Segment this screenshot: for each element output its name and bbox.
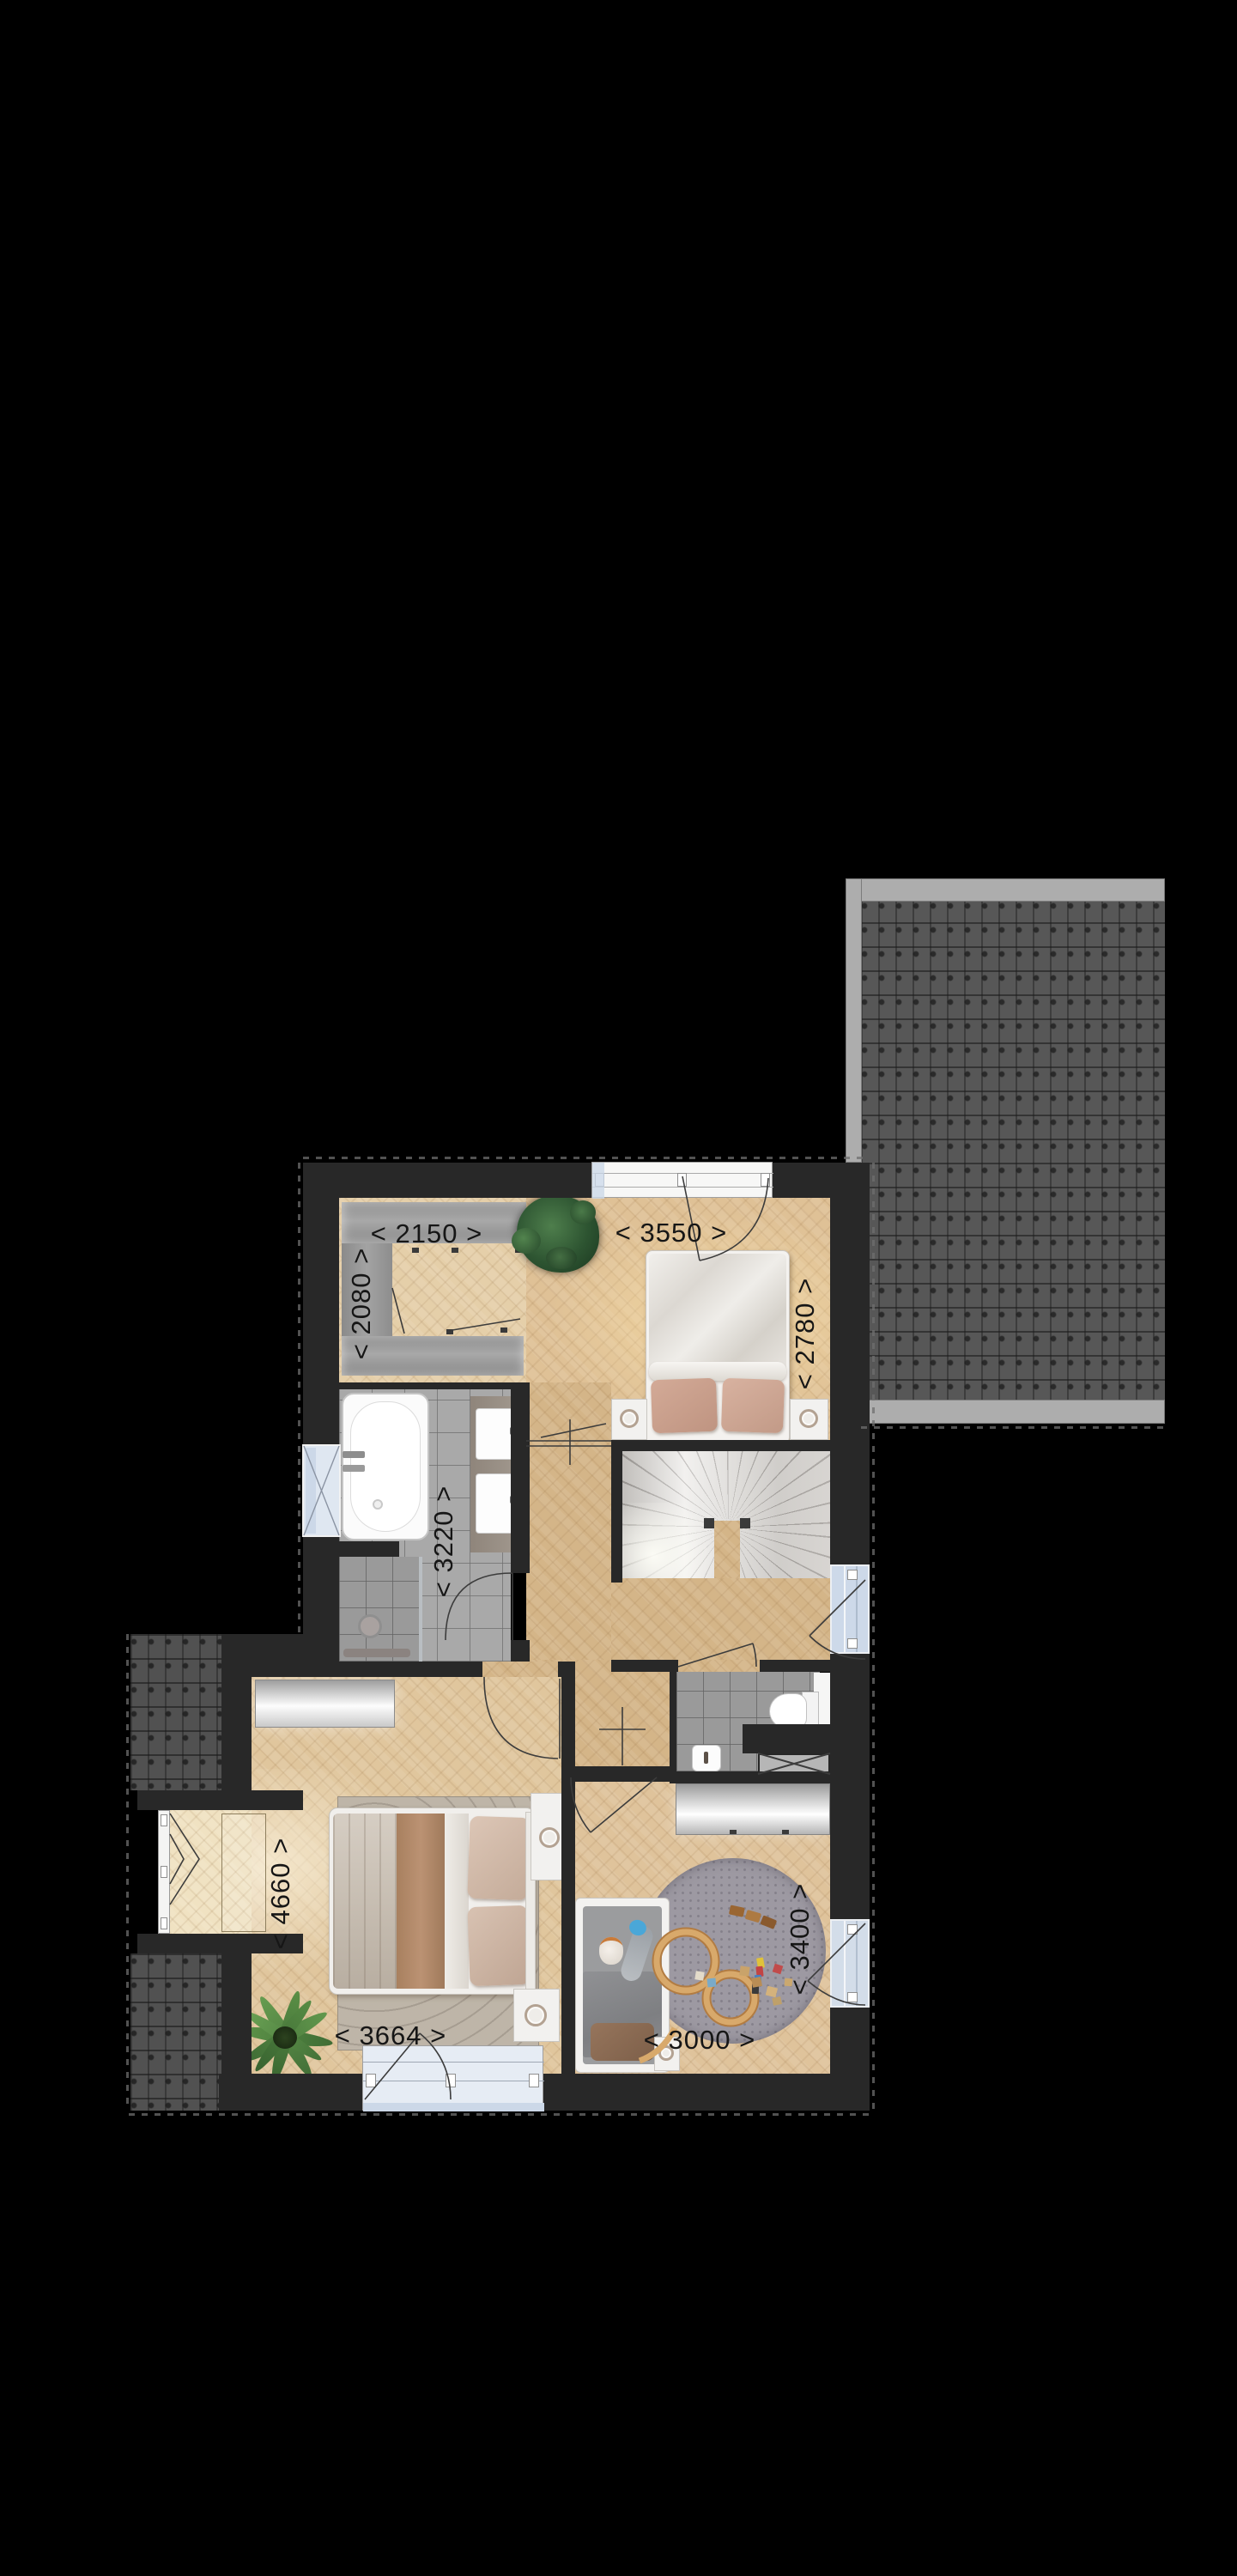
shower-bar-icon — [343, 1649, 410, 1657]
wall-bathroom-right-upper — [511, 1389, 530, 1573]
wall-toilet-left — [670, 1672, 676, 1771]
shower-glass-panel — [419, 1557, 422, 1662]
wall-wing-corner — [221, 1634, 303, 1677]
wall-room-divider — [561, 1677, 575, 2074]
window-mullion — [529, 2074, 539, 2087]
plant-leaf-icon — [546, 1247, 577, 1269]
wall-stairs-top — [611, 1440, 870, 1451]
window-mullion — [161, 1917, 167, 1929]
window-mullion — [847, 1924, 858, 1935]
wall-wing-strip-upper — [221, 1677, 252, 1790]
kids-wardrobe-handle — [782, 1830, 789, 1834]
dimension-label-bedroom2-depth: < 2780 > — [790, 1278, 821, 1389]
bed2-pillow-right — [721, 1378, 785, 1433]
window-mullion — [161, 1814, 167, 1826]
plant-leaf-icon — [512, 1228, 541, 1254]
window-bedroom2-top — [591, 1162, 773, 1198]
bed2-duvet-fold — [649, 1362, 786, 1381]
stair-landing-floor — [611, 1578, 830, 1660]
shower-head-icon — [358, 1614, 382, 1638]
wall-toilet-top-left — [611, 1660, 678, 1672]
window-frame-line — [844, 1566, 846, 1652]
stair-newel-post-right — [740, 1518, 750, 1528]
bed2-pillow-left — [651, 1378, 718, 1434]
palm-pot-icon — [273, 2026, 297, 2049]
wardrobe-handle-4 — [446, 1329, 453, 1334]
roof-right-tiles — [861, 898, 1165, 1403]
exterior-dash-right — [872, 1163, 875, 2111]
wall-top — [303, 1163, 870, 1198]
exterior-dash-top — [303, 1157, 870, 1159]
wall-bathroom-right-lower — [511, 1640, 530, 1662]
wall-bedroom1-door-jamb — [558, 1662, 575, 1677]
toilet-niche-wall — [743, 1724, 830, 1753]
window-mullion — [677, 1173, 687, 1187]
dimension-label-bedroom2-width: < 3550 > — [615, 1218, 727, 1249]
exterior-dash-left-wing — [126, 1634, 129, 2111]
bathtub-drain-icon — [373, 1499, 383, 1510]
stairwell-opening — [714, 1521, 740, 1578]
exterior-dash-left-upper — [298, 1163, 300, 1639]
wall-bedroom1-top — [303, 1662, 482, 1677]
shower-floor — [339, 1557, 422, 1662]
window-bedroom1-bottom — [362, 2045, 543, 2111]
wall-bathroom-top — [303, 1382, 530, 1389]
bedroom1-door-threshold — [482, 1662, 558, 1677]
bed1-throw-runner — [397, 1814, 445, 1989]
window-mullion — [847, 1992, 858, 2002]
wall-toilet-top-right — [760, 1660, 830, 1672]
bedroom1-dresser — [255, 1680, 395, 1728]
toilet-door-threshold — [678, 1660, 760, 1672]
dimension-label-closet-width: < 2150 > — [371, 1218, 482, 1249]
roof-right-gutter — [861, 1400, 1165, 1424]
wall-stairs-left — [611, 1451, 622, 1583]
window-glass — [306, 1448, 316, 1534]
stair-newel-post-left — [704, 1518, 714, 1528]
dimension-label-bedroom1-width: < 3664 > — [335, 2020, 446, 2051]
window-glass — [363, 2103, 544, 2111]
page: { "plan": { "type": "floor-plan-render",… — [0, 0, 1237, 2576]
dimension-label-kidsroom-width: < 3000 > — [644, 2025, 755, 2056]
wall-dormer-top — [137, 1790, 303, 1810]
roof-right-left-edge — [846, 878, 862, 1163]
exterior-dash-roof-bottom — [861, 1426, 1167, 1429]
hallway-corridor-floor — [526, 1382, 611, 1663]
speaker-icon — [525, 2004, 547, 2026]
window-mullion — [446, 2074, 456, 2087]
wall-wing-strip-lower — [221, 1953, 252, 2074]
window-frame-line — [363, 2062, 544, 2063]
window-kids-right — [830, 1919, 870, 2008]
toilet-sink-faucet-icon — [704, 1752, 708, 1764]
lamp-icon — [799, 1409, 818, 1428]
bed1-sheet-fold — [445, 1814, 469, 1989]
floor-plan: < 2150 > < 3550 > < 2080 > < 2780 > < 32… — [0, 0, 1237, 2576]
bathtub-faucet-icon — [343, 1465, 365, 1472]
staircase-light — [622, 1503, 725, 1578]
window-stairs-right — [830, 1564, 870, 1654]
window-mullion — [761, 1173, 770, 1187]
dimension-label-bathroom-depth: < 3220 > — [428, 1485, 459, 1597]
roof-left-lower-tiles — [130, 1953, 221, 2111]
wardrobe-handle-5 — [500, 1327, 507, 1333]
lamp-icon — [620, 1409, 639, 1428]
window-mullion — [366, 2074, 376, 2087]
lamp-icon — [539, 1827, 560, 1848]
kids-wardrobe-handle — [730, 1830, 737, 1834]
window-mullion — [847, 1638, 858, 1649]
window-mullion — [847, 1570, 858, 1580]
window-dormer-left — [158, 1810, 170, 1934]
dimension-label-bedroom1-depth: < 4660 > — [265, 1838, 296, 1949]
wall-left-upper — [303, 1198, 339, 1677]
dimension-label-kidsroom-depth: < 3400 > — [785, 1883, 816, 1995]
window-frame-line — [592, 1187, 773, 1188]
bathtub-faucet-icon — [343, 1451, 365, 1458]
plant-leaf-icon — [570, 1200, 596, 1224]
wall-toilet-bottom — [670, 1771, 830, 1783]
bed2-duvet — [649, 1254, 786, 1374]
kids-wardrobe — [676, 1783, 830, 1835]
dormer-nook-outline — [221, 1814, 266, 1932]
bed1-pillow-top — [467, 1816, 530, 1900]
window-bathroom-left — [302, 1444, 341, 1537]
wall-kids-top — [561, 1766, 676, 1782]
window-mullion — [161, 1866, 167, 1878]
toy-bunny-icon — [599, 1937, 623, 1965]
wall-shower-stub — [339, 1541, 399, 1557]
exterior-dash-bottom — [129, 2113, 872, 2116]
window-frame-line — [844, 1921, 846, 2006]
window-glass — [592, 1163, 604, 1199]
roof-right-ridge — [857, 878, 1165, 902]
dimension-label-closet-depth: < 2080 > — [346, 1248, 377, 1359]
roof-left-upper-tiles — [130, 1634, 221, 1790]
bed1-pillow-bottom — [467, 1905, 530, 1986]
wall-bottom — [219, 2074, 870, 2111]
